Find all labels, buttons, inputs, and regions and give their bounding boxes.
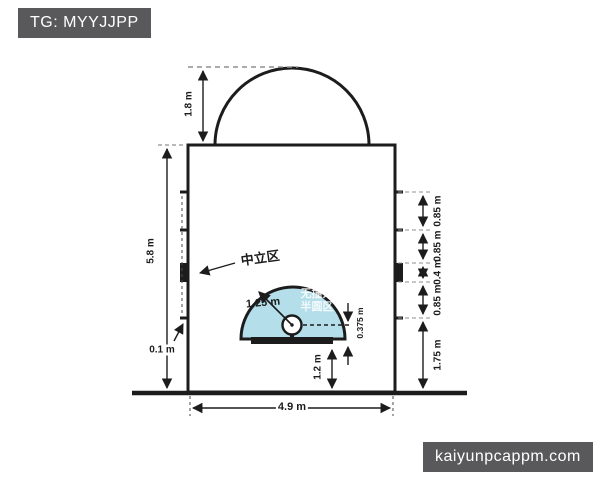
- label-no-charge-line2: 半圆区: [301, 301, 334, 314]
- label-rim-offset: 0.375 m: [355, 307, 365, 338]
- right-neutral-zone-block: [395, 263, 403, 282]
- label-hash-depth: 0.1 m: [147, 345, 177, 356]
- label-no-charge-line1: 无撞人: [301, 288, 334, 301]
- right-dashed-extensions: [398, 192, 433, 318]
- lane-rectangle: [188, 145, 395, 392]
- label-backboard-endline: 1.2 m: [313, 354, 324, 380]
- label-right-segment-4: 0.85 m: [433, 284, 444, 315]
- label-lane-length: 5.8 m: [146, 238, 157, 264]
- label-lane-width: 4.9 m: [276, 401, 308, 413]
- backboard: [251, 337, 333, 344]
- label-right-segment-5: 1.75 m: [433, 339, 444, 370]
- label-right-segment-2: 0.85 m: [433, 230, 444, 261]
- free-throw-arc: [215, 68, 369, 145]
- label-no-charge-area: 无撞人 半圆区: [301, 288, 334, 314]
- label-right-segment-1: 0.85 m: [433, 195, 444, 226]
- left-neutral-zone-block: [180, 263, 188, 282]
- hash-depth-arrow: [174, 324, 183, 341]
- label-right-segment-3: 0.4 m: [433, 259, 444, 285]
- label-arc-height: 1.8 m: [184, 91, 195, 117]
